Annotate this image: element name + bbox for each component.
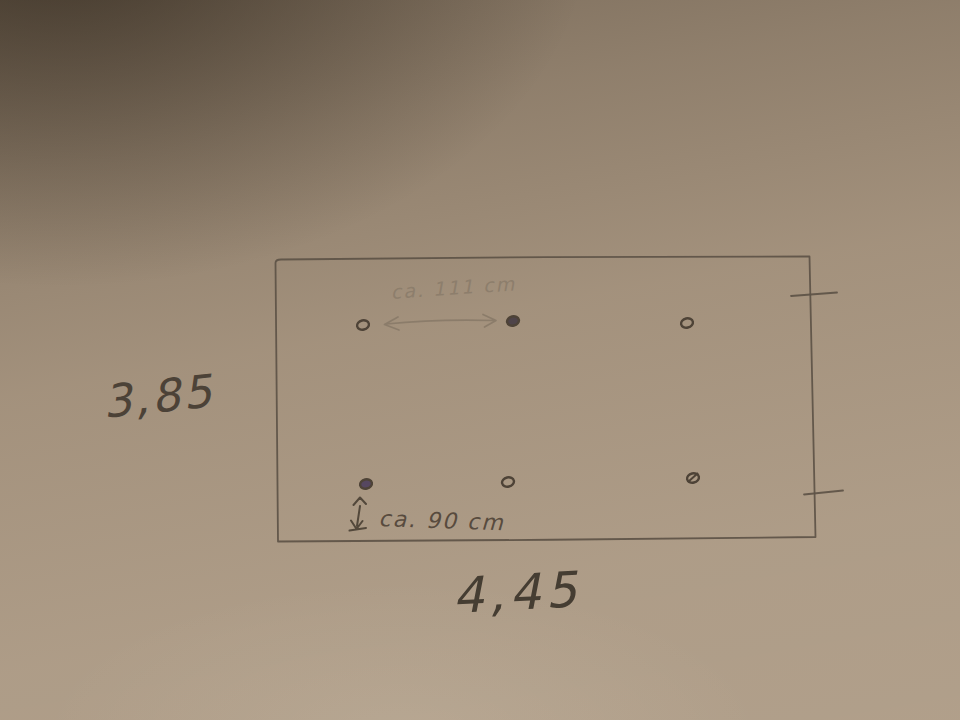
bottom-offset-label: ca. 90 cm xyxy=(378,506,505,535)
photo-of-sketch: 3,85 4,45 ca. 111 cm ca. 90 cm xyxy=(0,0,960,720)
right-edge-tick-top xyxy=(791,293,837,297)
vertical-dimension-arrow xyxy=(350,498,367,531)
horizontal-dimension-arrow xyxy=(385,315,497,331)
rectangle-outline xyxy=(276,256,816,541)
hole-marker xyxy=(359,478,373,489)
hole-marker xyxy=(506,315,520,326)
hole-marker xyxy=(680,317,694,328)
right-edge-tick-bottom xyxy=(804,491,843,495)
width-dimension-label: 4,45 xyxy=(451,561,583,625)
hole-marker xyxy=(356,319,370,330)
hole-marker xyxy=(501,476,515,487)
hole-markers xyxy=(356,315,700,489)
